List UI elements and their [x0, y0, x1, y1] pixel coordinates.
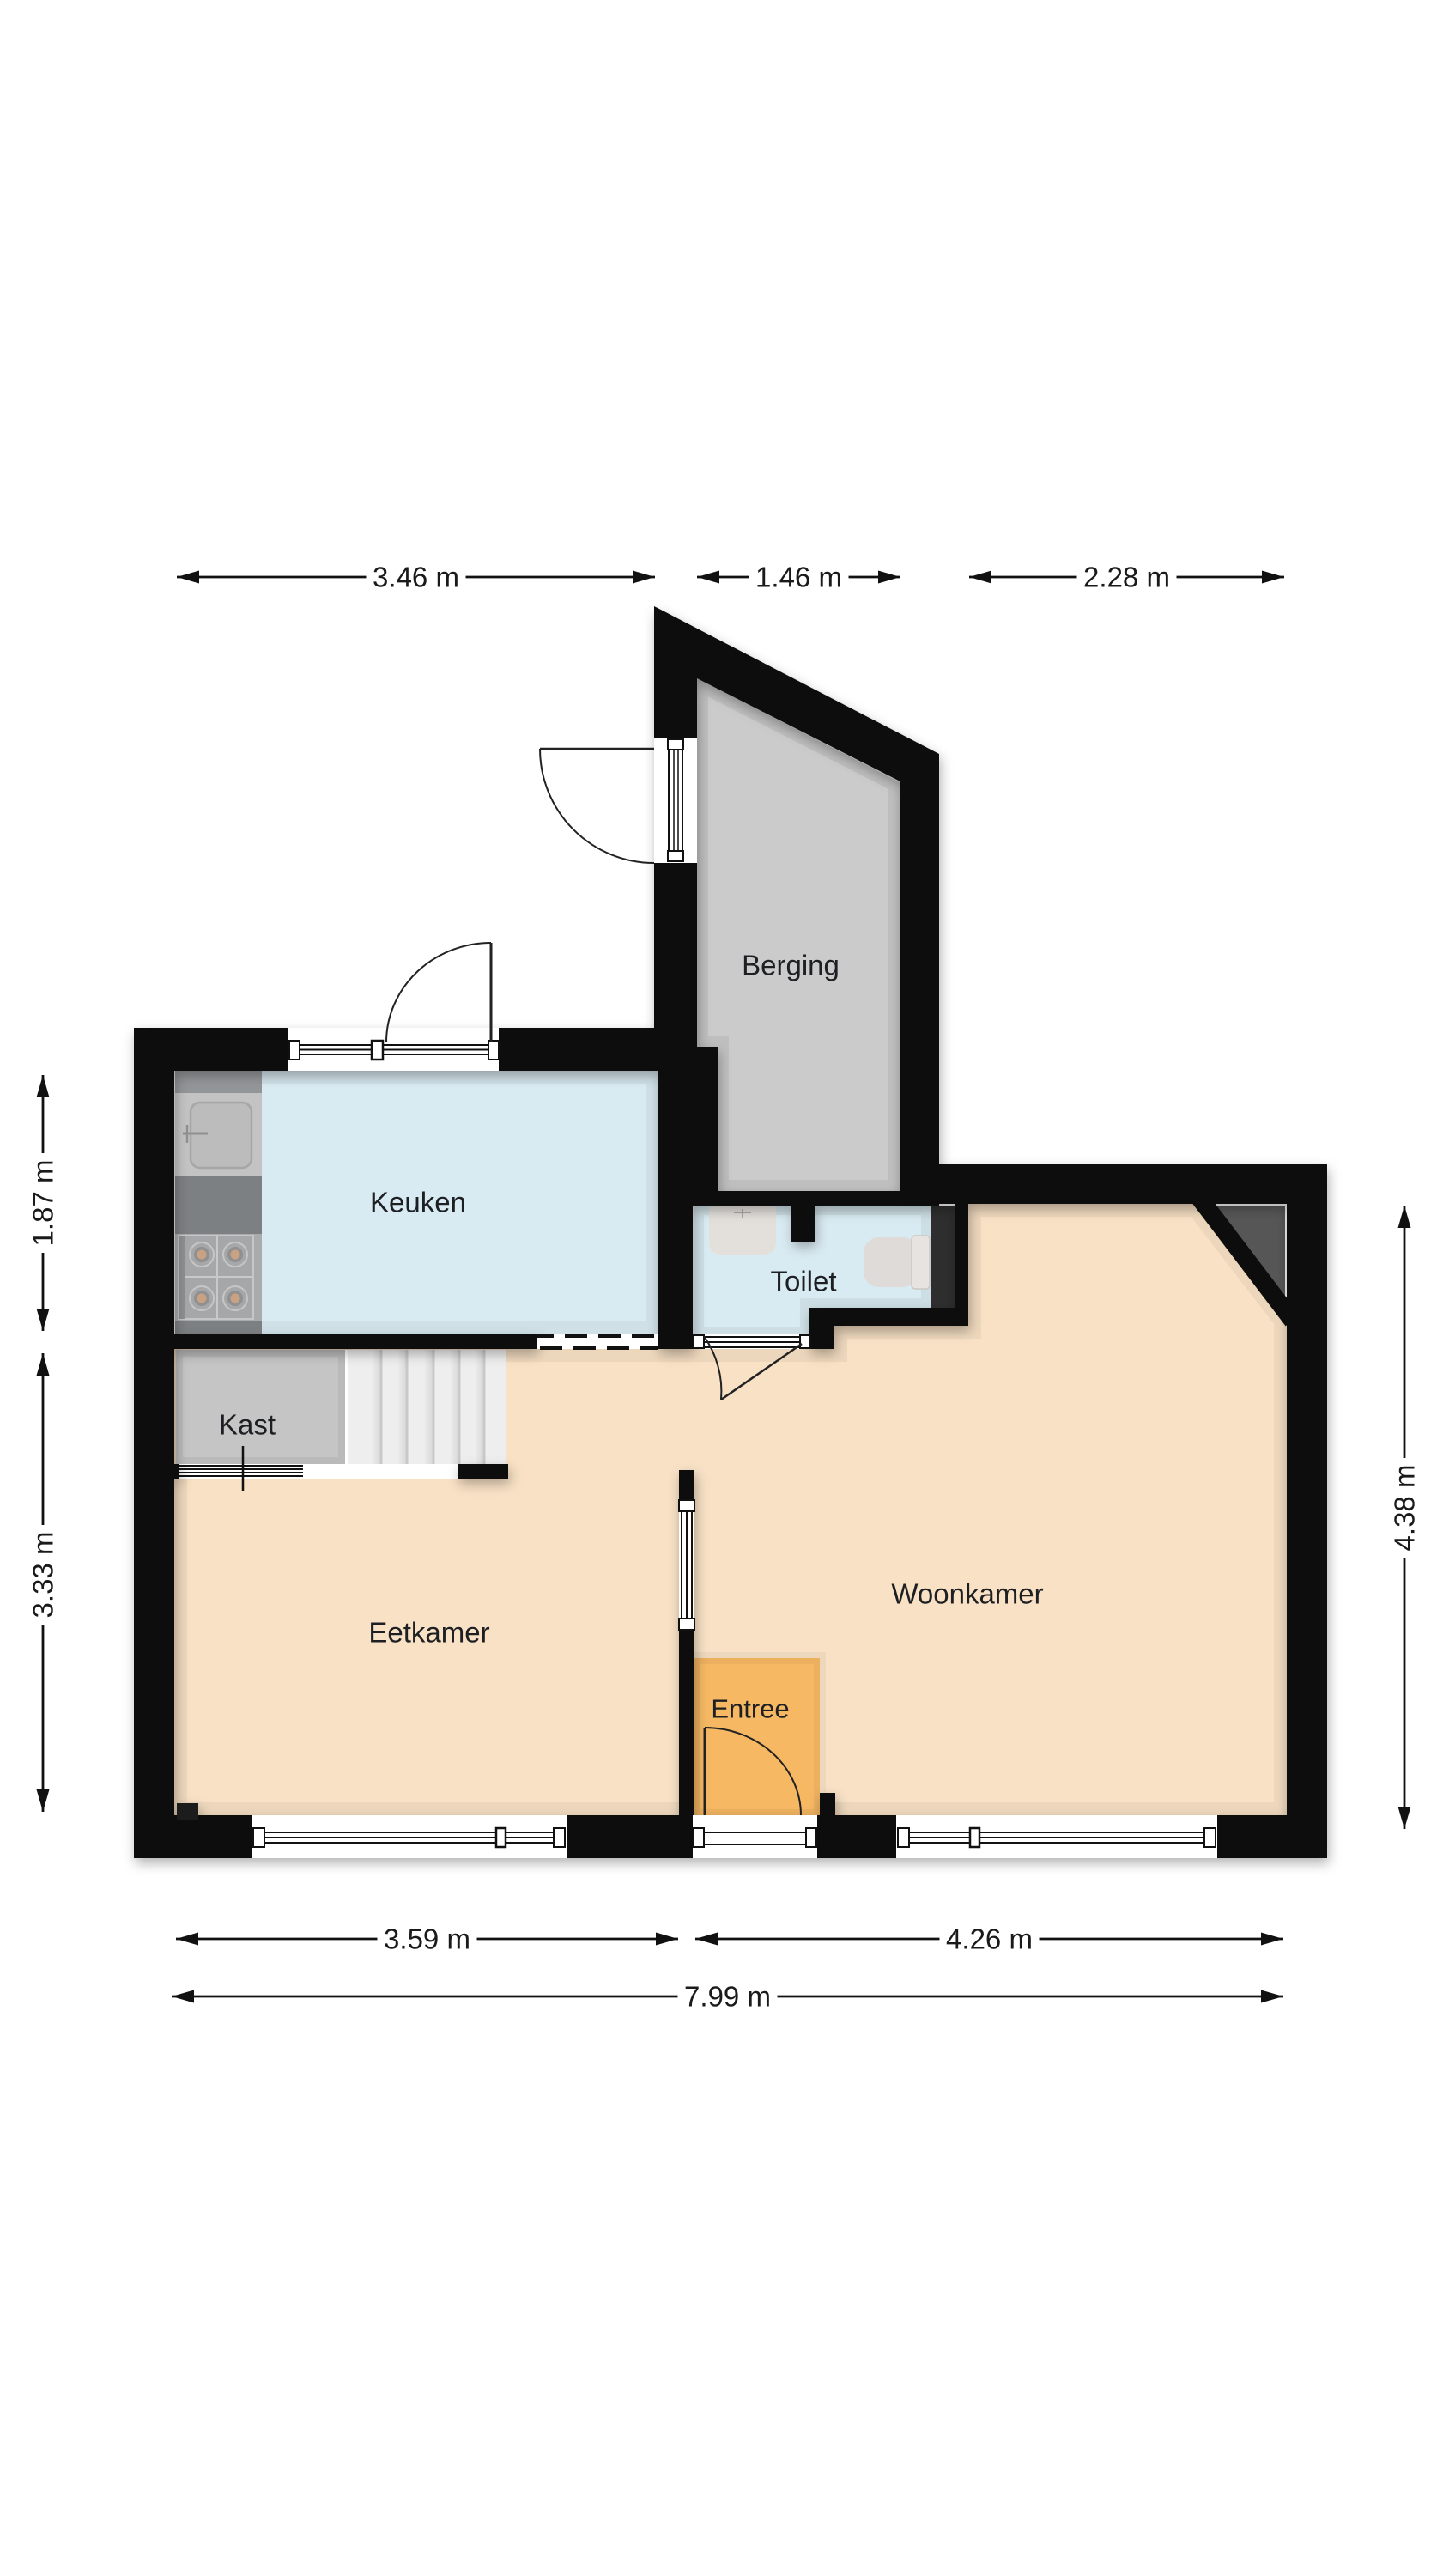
- svg-text:2.28 m: 2.28 m: [1083, 562, 1170, 593]
- svg-text:1.87 m: 1.87 m: [27, 1160, 59, 1247]
- svg-text:Toilet: Toilet: [770, 1266, 836, 1297]
- svg-text:Woonkamer: Woonkamer: [891, 1578, 1043, 1610]
- svg-text:7.99 m: 7.99 m: [684, 1981, 771, 2013]
- svg-text:4.38 m: 4.38 m: [1389, 1465, 1421, 1552]
- svg-text:Keuken: Keuken: [370, 1187, 466, 1218]
- svg-text:Eetkamer: Eetkamer: [368, 1617, 489, 1649]
- svg-text:3.59 m: 3.59 m: [384, 1923, 470, 1955]
- svg-text:3.33 m: 3.33 m: [27, 1532, 59, 1619]
- svg-text:3.46 m: 3.46 m: [373, 562, 459, 593]
- svg-text:1.46 m: 1.46 m: [755, 562, 842, 593]
- svg-text:Berging: Berging: [742, 950, 840, 981]
- svg-text:Kast: Kast: [219, 1409, 276, 1441]
- svg-text:4.26 m: 4.26 m: [946, 1923, 1033, 1955]
- svg-text:Entree: Entree: [711, 1694, 789, 1724]
